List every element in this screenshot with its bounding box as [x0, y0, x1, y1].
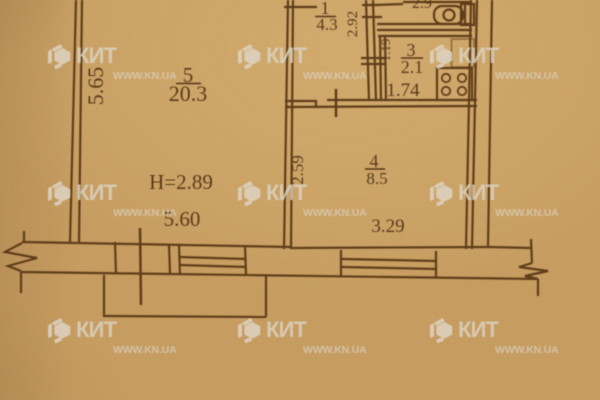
- svg-text:8.5: 8.5: [366, 169, 387, 188]
- svg-text:Н=2.89: Н=2.89: [149, 170, 213, 194]
- svg-text:5.60: 5.60: [164, 207, 201, 231]
- svg-text:4.3: 4.3: [316, 15, 337, 34]
- svg-text:1.19: 1.19: [378, 39, 393, 62]
- svg-text:1.74: 1.74: [386, 80, 420, 101]
- svg-text:20.3: 20.3: [169, 81, 208, 106]
- svg-text:4: 4: [370, 151, 379, 171]
- svg-text:2.9: 2.9: [412, 0, 432, 12]
- svg-text:2.1: 2.1: [401, 57, 424, 77]
- svg-text:3.29: 3.29: [371, 216, 404, 237]
- svg-text:5.65: 5.65: [83, 67, 108, 106]
- svg-text:2.59: 2.59: [288, 155, 307, 185]
- svg-text:2.92: 2.92: [345, 11, 361, 37]
